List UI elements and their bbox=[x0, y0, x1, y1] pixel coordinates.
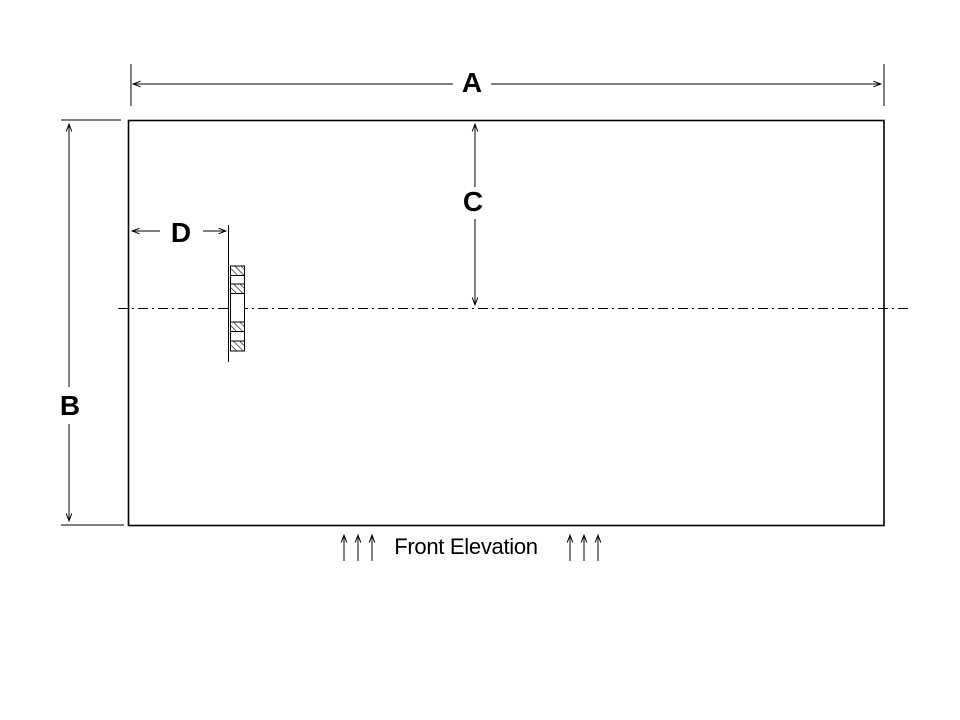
flange-bore bbox=[231, 294, 245, 323]
view-caption: Front Elevation bbox=[394, 536, 537, 558]
dim-b-lines bbox=[61, 120, 124, 525]
caption-arrows-left bbox=[344, 535, 372, 561]
flange-gap-1 bbox=[231, 276, 245, 285]
dim-a-lines bbox=[131, 64, 884, 106]
dim-label-c: C bbox=[461, 188, 485, 216]
nozzle-flange-section bbox=[229, 225, 245, 362]
dim-label-b: B bbox=[58, 392, 82, 420]
flange-hatch-4 bbox=[231, 341, 245, 351]
dim-label-d: D bbox=[169, 219, 193, 247]
flange-gap-2 bbox=[231, 332, 245, 342]
flange-hatch-1 bbox=[231, 266, 245, 276]
flange-hatch-2 bbox=[231, 284, 245, 294]
flange-hatch-3 bbox=[231, 322, 245, 332]
dim-label-a: A bbox=[460, 69, 484, 97]
caption-arrows-right bbox=[570, 535, 598, 561]
slide-canvas: A B C D Front Elevation bbox=[0, 0, 960, 720]
elevation-drawing bbox=[0, 0, 960, 720]
